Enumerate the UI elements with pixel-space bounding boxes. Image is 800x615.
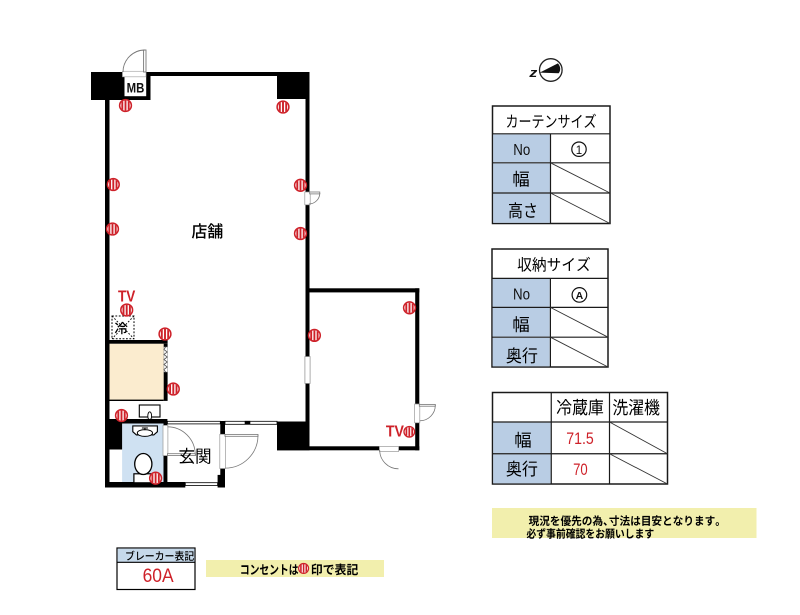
- svg-text:71.5: 71.5: [566, 429, 594, 448]
- svg-text:MB: MB: [127, 79, 145, 95]
- svg-text:No: No: [513, 287, 530, 304]
- svg-text:TV: TV: [118, 289, 136, 306]
- svg-text:70: 70: [573, 460, 588, 479]
- svg-text:TV: TV: [386, 424, 404, 441]
- svg-text:No: No: [513, 142, 530, 159]
- svg-text:A: A: [576, 290, 584, 302]
- svg-text:60A: 60A: [143, 566, 174, 587]
- svg-text:z: z: [528, 66, 538, 80]
- svg-text:1: 1: [576, 145, 582, 157]
